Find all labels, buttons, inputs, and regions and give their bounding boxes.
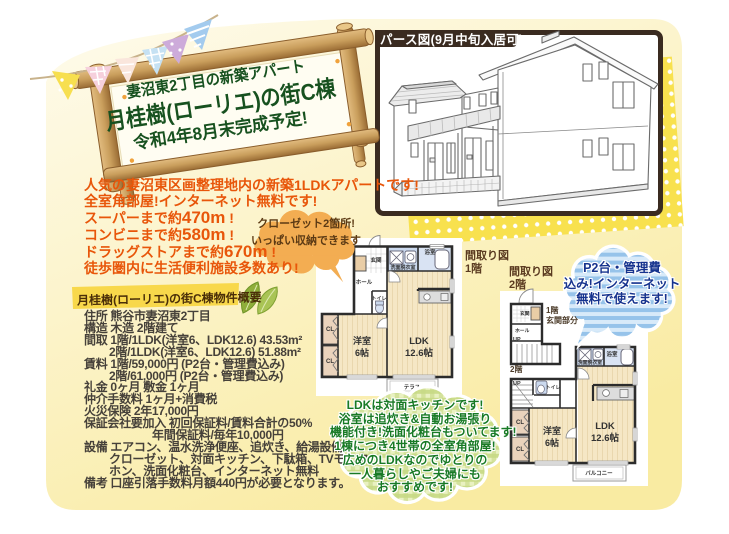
- svg-text:玄関: 玄関: [520, 310, 530, 317]
- svg-text:間取り図: 間取り図: [509, 264, 553, 278]
- svg-text:パース図(9月中旬入居可): パース図(9月中旬入居可): [380, 32, 524, 47]
- svg-text:12.6帖: 12.6帖: [405, 347, 433, 359]
- svg-text:洗面脱衣室: 洗面脱衣室: [578, 359, 602, 366]
- svg-text:トイレ: トイレ: [545, 385, 560, 391]
- svg-text:1階: 1階: [546, 305, 558, 315]
- svg-text:2階: 2階: [510, 364, 522, 374]
- svg-text:洋室: 洋室: [543, 425, 561, 436]
- svg-text:浴室: 浴室: [424, 248, 436, 256]
- svg-text:玄関部分: 玄関部分: [546, 315, 578, 325]
- svg-text:UP: UP: [513, 381, 521, 387]
- svg-text:ホール: ホール: [515, 327, 530, 334]
- svg-text:UP: UP: [513, 337, 521, 343]
- svg-text:LDK: LDK: [595, 421, 615, 432]
- svg-text:2階: 2階: [509, 277, 526, 291]
- svg-text:12.6帖: 12.6帖: [591, 432, 619, 444]
- svg-text:6帖: 6帖: [545, 437, 559, 448]
- svg-text:CL: CL: [516, 447, 524, 453]
- svg-text:間取り図: 間取り図: [465, 248, 509, 262]
- svg-text:CL: CL: [516, 420, 524, 426]
- svg-text:浴室: 浴室: [606, 350, 618, 358]
- svg-text:バルコニー: バルコニー: [585, 470, 613, 477]
- svg-text:ホール: ホール: [356, 279, 373, 286]
- svg-text:LDK: LDK: [409, 336, 429, 347]
- svg-text:トイレ: トイレ: [371, 296, 386, 302]
- svg-text:1階: 1階: [465, 261, 482, 275]
